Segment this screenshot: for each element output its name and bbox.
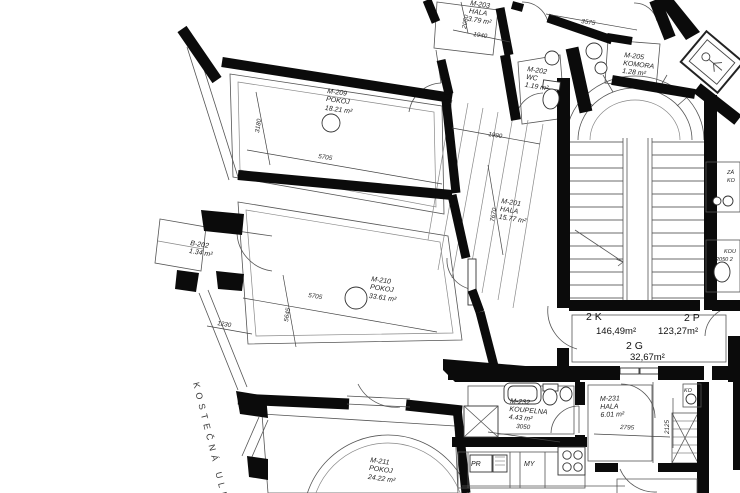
room-label-m205: M-205 KOMORA 1.28 m² (622, 52, 656, 79)
dim-1940: 1940 (473, 31, 488, 40)
room-label-m210: M-210 POKOJ 33.61 m² (368, 276, 399, 304)
dim-3050: 3050 (516, 423, 531, 431)
stove-icon (558, 447, 585, 475)
stair-treads (570, 142, 704, 298)
ceiling-symbol (322, 114, 340, 132)
dim-3180: 3180 (254, 118, 263, 133)
room-label-m203: M-203 HALA 3.79 m² (467, 0, 495, 27)
unit-2g-area: 32,67m² (630, 352, 665, 363)
room-label-m231: M-231 HALA 6.01 m² (600, 395, 625, 419)
unit-2p-id: 2 P (684, 312, 700, 324)
edge-label-kdim: 2050 2 (715, 257, 733, 263)
unit-2k-area: 146,49m² (596, 326, 636, 337)
edge-label-ko: KO (727, 178, 736, 184)
dim-2795: 2795 (619, 424, 635, 432)
street-name-label: KOSTEČNÁ ULICE (191, 381, 235, 493)
edge-label-za: ZÁ (726, 169, 734, 176)
dim-2125: 2125 (664, 419, 671, 435)
dishwasher-label: MY (524, 461, 536, 468)
room-area: 4.43 m² (508, 414, 533, 423)
room-area: 24.22 m² (366, 474, 396, 485)
closet-label: KO (684, 388, 693, 394)
room-area: 33.61 m² (368, 293, 397, 304)
room-area: 1.34 m² (188, 248, 213, 259)
unit-2g-id: 2 G (626, 340, 643, 352)
room-label-b202: B-202 1.34 m² (188, 240, 214, 259)
unit-2k-id: 2 K (586, 311, 602, 323)
ceiling-symbol (345, 287, 367, 309)
room-label-m232: M-232 KOUPELNA 4.43 m² (508, 398, 548, 424)
room-area: 15.77 m² (498, 214, 527, 225)
dim-5705-top: 5705 (318, 153, 333, 162)
floor-plan-page: M-209 POKOJ 18.21 m² M-210 POKOJ 33.61 m… (0, 0, 740, 493)
edge-label-kou: KOU (724, 249, 736, 255)
dim-2050: 2050 (461, 14, 471, 30)
room-label-m211: M-211 POKOJ 24.22 m² (366, 457, 398, 485)
room-id: M-231 (600, 395, 620, 403)
dim-5705-mid: 5705 (308, 292, 323, 301)
room-label-m202: M-202 WC 1.19 m² (524, 66, 552, 93)
service-stair-shaft (672, 413, 698, 463)
floor-plan-canvas: M-209 POKOJ 18.21 m² M-210 POKOJ 33.61 m… (0, 0, 740, 493)
room-label-m201: M-201 HALA 15.77 m² (498, 198, 530, 225)
dim-1990: 1990 (488, 131, 503, 140)
unit-2p-area: 123,27m² (658, 326, 698, 337)
room-area: 6.01 m² (600, 411, 625, 419)
room-name: HALA (600, 403, 619, 411)
washer-label: PR (471, 461, 481, 468)
room-area: 3.79 m² (467, 16, 492, 27)
elevator-icon (681, 31, 740, 92)
lobby-fixtures (586, 43, 607, 74)
